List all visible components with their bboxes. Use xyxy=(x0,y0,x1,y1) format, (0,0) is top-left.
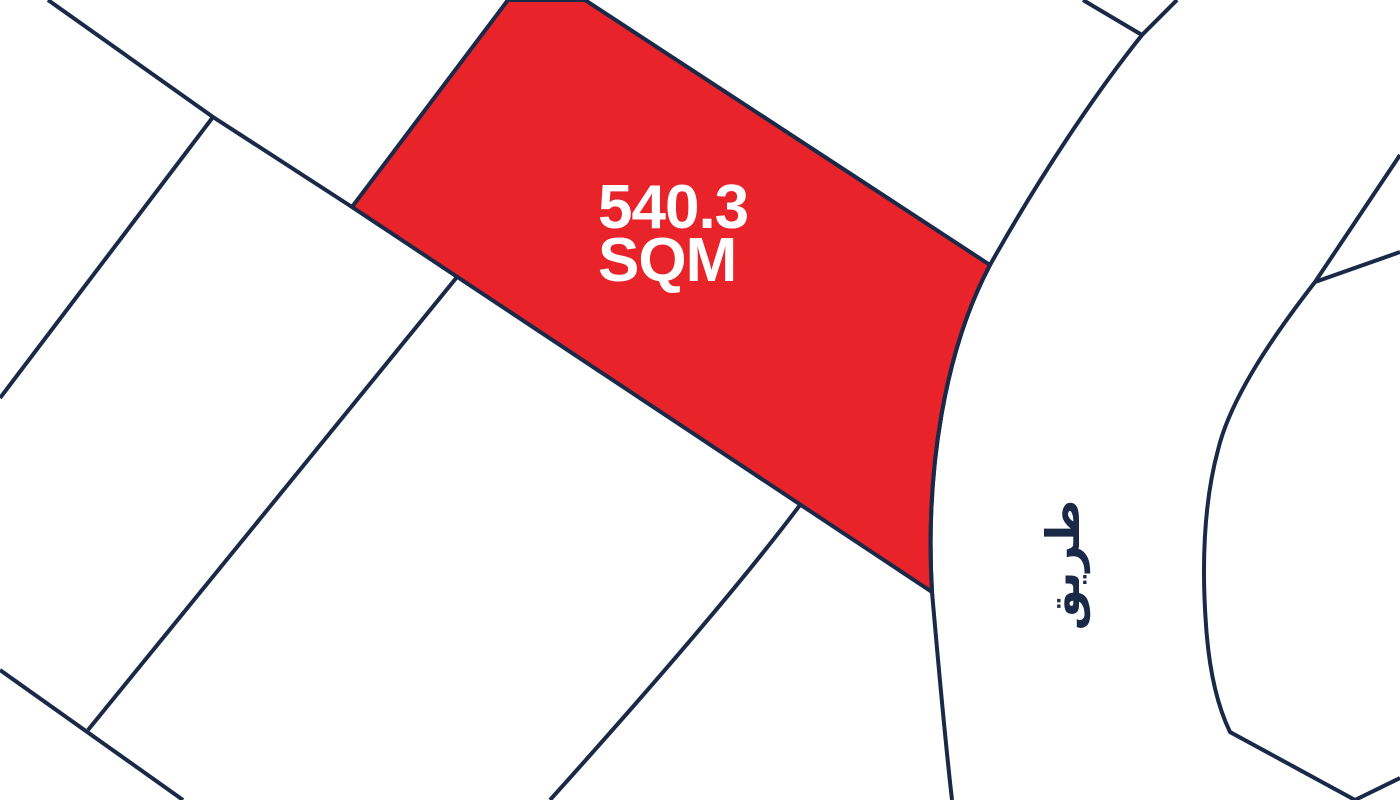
highlighted-parcel[interactable] xyxy=(352,0,990,592)
parcel-area-unit: SQM xyxy=(598,226,736,295)
top-road-branch-line xyxy=(1083,0,1142,35)
road-name-label: طريق xyxy=(1036,500,1090,631)
road-left-edge-line xyxy=(931,0,1177,800)
mid-left-branch-line xyxy=(88,277,457,730)
right-side-branch-line xyxy=(1315,252,1400,282)
plat-map-canvas: 540.3 SQM طريق xyxy=(0,0,1400,800)
upper-left-boundary-line xyxy=(48,0,352,207)
lower-mid-branch-line xyxy=(550,505,800,800)
left-down-boundary-line xyxy=(0,117,213,398)
road-right-edge-line xyxy=(1204,155,1400,800)
plat-map: 540.3 SQM طريق xyxy=(0,0,1400,800)
bottom-right-corner-line xyxy=(1355,778,1400,800)
bottom-left-boundary-line xyxy=(0,670,183,800)
